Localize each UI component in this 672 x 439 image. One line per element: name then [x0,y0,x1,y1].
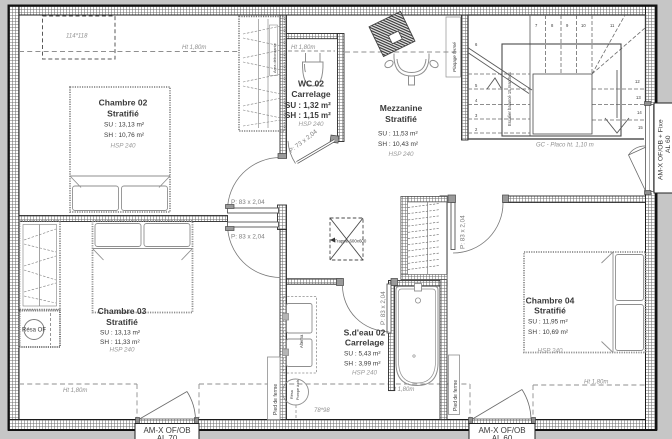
svg-text:Escalier balancé 15 marches: Escalier balancé 15 marches [507,72,512,126]
svg-text:Ht 1,80m: Ht 1,80m [182,45,206,51]
svg-text:AM-X OF/OB + Fixe: AM-X OF/OB + Fixe [658,119,665,180]
svg-text:SH : 10,76 m²: SH : 10,76 m² [104,132,145,139]
svg-text:Chambre 03: Chambre 03 [98,306,147,316]
svg-text:Stratifié: Stratifié [385,114,417,124]
svg-text:114*118: 114*118 [66,34,88,40]
svg-text:Pompe à ch.: Pompe à ch. [296,379,300,400]
svg-text:12: 12 [635,79,640,84]
svg-text:SH : 3,99 m²: SH : 3,99 m² [344,361,381,368]
svg-text:Plaqage fermé: Plaqage fermé [452,42,457,72]
svg-text:15: 15 [638,125,643,130]
svg-text:10: 10 [581,23,586,28]
svg-text:Pied de ferme: Pied de ferme [273,384,279,415]
svg-text:HSP 240: HSP 240 [389,151,414,158]
svg-text:Area débordante: Area débordante [272,42,277,73]
svg-text:HSP 240: HSP 240 [110,347,135,354]
svg-text:Stratifié: Stratifié [106,317,138,327]
svg-text:SH : 10,69 m²: SH : 10,69 m² [528,329,569,336]
svg-text:HSP 240: HSP 240 [538,348,563,355]
svg-text:Carrelage: Carrelage [291,89,330,99]
svg-text:Mezzanine: Mezzanine [380,103,423,113]
svg-text:Chambre 04: Chambre 04 [526,296,575,306]
svg-text:GC - Placo ht. 1,10 m: GC - Placo ht. 1,10 m [536,143,594,149]
svg-text:Ht 1,80m: Ht 1,80m [584,380,608,386]
svg-text:P: 83 x 2,04: P: 83 x 2,04 [380,291,387,325]
svg-text:Ht 1,80m: Ht 1,80m [291,45,315,51]
svg-text:AL 70: AL 70 [157,434,178,439]
svg-text:SU : 1,32 m²: SU : 1,32 m² [285,101,331,110]
svg-text:SU : 11,53 m²: SU : 11,53 m² [378,131,418,138]
svg-text:Stratifié: Stratifié [107,109,139,119]
svg-text:SH : 11,33 m²: SH : 11,33 m² [100,339,140,346]
svg-text:Résa: Résa [290,389,294,399]
svg-text:11: 11 [610,23,615,28]
svg-text:P: 83 x 2,04: P: 83 x 2,04 [231,199,265,206]
svg-text:P: 83 x 2,04: P: 83 x 2,04 [460,215,467,249]
svg-text:Trappe 600x600: Trappe 600x600 [335,239,367,244]
svg-text:14: 14 [637,110,642,115]
svg-text:13: 13 [636,95,641,100]
svg-text:HSP 240: HSP 240 [111,143,136,150]
svg-text:Pied de ferme: Pied de ferme [453,380,459,411]
svg-text:AL 60: AL 60 [492,434,513,439]
svg-text:Stratifié: Stratifié [534,306,566,316]
svg-text:Ht 1,80m: Ht 1,80m [63,388,87,394]
svg-text:WC 02: WC 02 [298,79,324,89]
svg-text:AL 60: AL 60 [665,135,672,153]
svg-text:SU : 5,43 m²: SU : 5,43 m² [344,351,381,358]
svg-text:SU : 13,13 m²: SU : 13,13 m² [100,330,141,337]
svg-text:SU : 13,13 m²: SU : 13,13 m² [104,122,145,129]
svg-text:SH : 1,15 m²: SH : 1,15 m² [285,111,331,120]
svg-text:SU : 11,95 m²: SU : 11,95 m² [528,319,568,326]
svg-text:78*98: 78*98 [314,408,330,414]
svg-text:P: 83 x 2,04: P: 83 x 2,04 [231,234,265,241]
svg-text:Alterna: Alterna [299,334,304,348]
svg-text:Chambre 02: Chambre 02 [99,98,148,108]
svg-text:Carrelage: Carrelage [345,338,384,348]
svg-text:HSP 240: HSP 240 [352,370,377,377]
svg-text:HSP 240: HSP 240 [299,121,324,128]
svg-text:SH : 10,43 m²: SH : 10,43 m² [378,141,419,148]
svg-text:Résa OF: Résa OF [22,328,46,334]
svg-text:S.d'eau 02: S.d'eau 02 [344,328,386,338]
